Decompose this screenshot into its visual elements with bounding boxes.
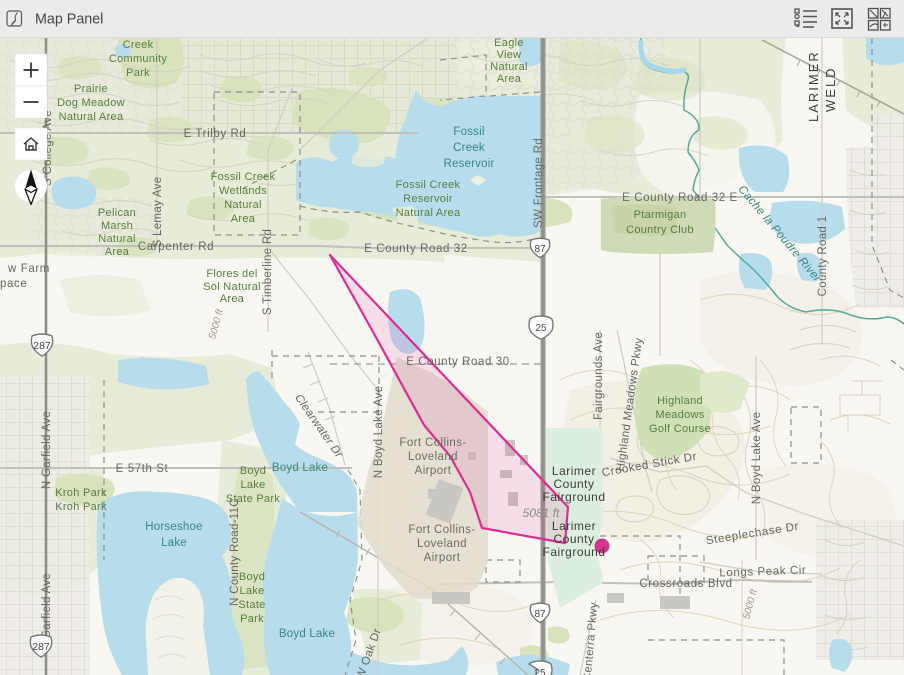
svg-text:Area: Area: [231, 213, 256, 225]
svg-text:Creek: Creek: [453, 142, 485, 154]
svg-text:Lake: Lake: [239, 585, 264, 597]
svg-text:Park: Park: [240, 613, 264, 625]
svg-text:View: View: [497, 49, 522, 61]
svg-text:State: State: [238, 599, 265, 611]
svg-text:Reservoir: Reservoir: [443, 158, 494, 170]
svg-text:Airport: Airport: [424, 552, 461, 564]
svg-text:Wetlands: Wetlands: [219, 185, 267, 197]
svg-text:State Park: State Park: [226, 493, 281, 505]
svg-text:Fairgrounds Ave: Fairgrounds Ave: [593, 332, 605, 420]
svg-text:Sol Natural: Sol Natural: [203, 281, 261, 293]
svg-text:Prairie: Prairie: [74, 83, 108, 95]
svg-text:Natural: Natural: [224, 199, 262, 211]
svg-text:Fort Collins-: Fort Collins-: [408, 524, 475, 536]
svg-text:Larimer: Larimer: [552, 464, 596, 478]
svg-text:Loveland: Loveland: [408, 451, 458, 463]
svg-text:Reservoir: Reservoir: [403, 193, 453, 205]
svg-text:287: 287: [33, 340, 51, 352]
svg-text:Park: Park: [126, 67, 150, 79]
svg-text:Carpenter Rd: Carpenter Rd: [138, 241, 214, 253]
svg-text:N Boyd Lake Ave: N Boyd Lake Ave: [751, 412, 763, 505]
svg-text:Creek: Creek: [123, 39, 154, 51]
svg-text:Marsh: Marsh: [101, 220, 133, 232]
svg-text:Lake: Lake: [240, 479, 265, 491]
svg-text:Horseshoe: Horseshoe: [145, 521, 202, 533]
svg-text:Fort Collins-: Fort Collins-: [399, 437, 466, 449]
svg-text:Larimer: Larimer: [552, 519, 596, 533]
svg-text:Highland: Highland: [657, 395, 703, 407]
svg-text:Lake: Lake: [161, 537, 187, 549]
svg-text:Fairground: Fairground: [542, 490, 605, 504]
svg-text:Meadows: Meadows: [655, 409, 704, 421]
svg-text:Pelican: Pelican: [98, 207, 136, 219]
svg-text:S Timberline Rd: S Timberline Rd: [262, 229, 274, 315]
svg-text:Area: Area: [220, 293, 245, 305]
svg-text:25: 25: [534, 668, 546, 675]
svg-text:Kroh Park: Kroh Park: [55, 501, 107, 513]
svg-text:Boyd: Boyd: [240, 465, 266, 477]
svg-text:pace: pace: [0, 278, 27, 290]
svg-text:Community: Community: [109, 53, 168, 65]
svg-text:Natural: Natural: [98, 233, 136, 245]
svg-text:S Lemay Ave: S Lemay Ave: [152, 177, 164, 248]
svg-text:Country Club: Country Club: [626, 224, 694, 236]
svg-text:Golf Course: Golf Course: [649, 423, 711, 435]
svg-text:Eagle: Eagle: [494, 37, 524, 49]
svg-text:County: County: [553, 532, 594, 546]
svg-text:Fossil Creek: Fossil Creek: [211, 171, 276, 183]
svg-text:Flores del: Flores del: [206, 268, 257, 280]
svg-text:County Road 1: County Road 1: [817, 216, 829, 297]
svg-text:Area: Area: [105, 246, 130, 258]
svg-text:Airport: Airport: [415, 465, 452, 477]
svg-text:N Boyd Lake Ave: N Boyd Lake Ave: [373, 386, 385, 479]
svg-text:Boyd Lake: Boyd Lake: [272, 462, 328, 474]
svg-text:N Garfield Ave: N Garfield Ave: [41, 411, 53, 489]
svg-text:Kroh Park: Kroh Park: [55, 487, 107, 499]
svg-text:E County Road 32: E County Road 32: [364, 243, 468, 255]
svg-text:25: 25: [535, 323, 547, 334]
svg-text:5081 ft: 5081 ft: [523, 506, 560, 520]
svg-text:LARIMER: LARIMER: [806, 50, 821, 122]
svg-text:Boyd: Boyd: [239, 571, 265, 583]
svg-text:E County Road 30: E County Road 30: [406, 356, 510, 368]
svg-text:Fossil: Fossil: [453, 126, 484, 138]
svg-text:E County Road 32 E: E County Road 32 E: [622, 192, 738, 204]
svg-text:87: 87: [534, 609, 546, 620]
svg-text:County: County: [553, 477, 594, 491]
svg-text:Area: Area: [497, 73, 522, 85]
svg-text:Fossil Creek: Fossil Creek: [396, 179, 461, 191]
svg-text:Crossroads Blvd: Crossroads Blvd: [639, 578, 732, 590]
svg-text:WELD: WELD: [823, 66, 838, 112]
svg-text:E Trilby Rd: E Trilby Rd: [184, 128, 247, 140]
svg-text:Boyd Lake: Boyd Lake: [279, 628, 335, 640]
svg-text:Fairground: Fairground: [542, 545, 605, 559]
svg-text:Natural Area: Natural Area: [396, 207, 461, 219]
svg-text:w Farm: w Farm: [7, 263, 50, 275]
svg-text:Natural: Natural: [490, 61, 528, 73]
svg-text:287: 287: [32, 641, 50, 653]
svg-text:SW Frontage Rd: SW Frontage Rd: [533, 138, 545, 228]
svg-text:Ptarmigan: Ptarmigan: [634, 209, 687, 221]
svg-text:87: 87: [534, 244, 546, 255]
svg-text:Loveland: Loveland: [417, 538, 467, 550]
svg-text:E 57th St: E 57th St: [116, 463, 169, 475]
